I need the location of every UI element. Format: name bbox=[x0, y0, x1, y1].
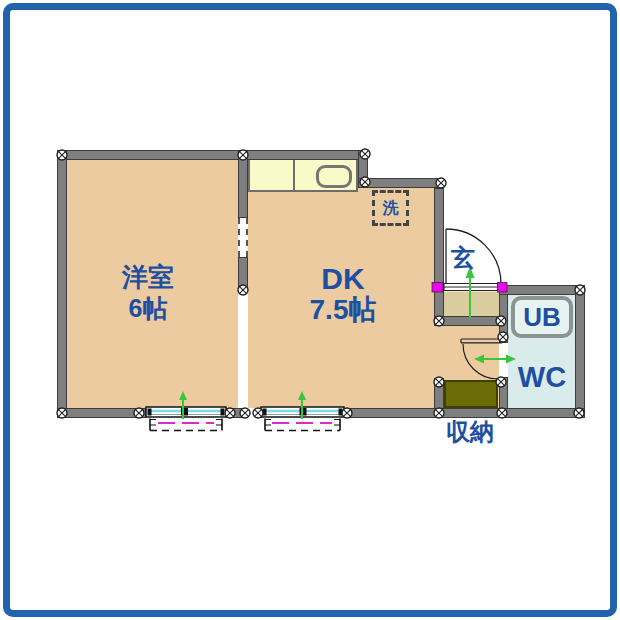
storage-label: 収納 bbox=[446, 420, 494, 444]
wall-partition-lower bbox=[238, 257, 248, 291]
wall-partition-opening bbox=[238, 218, 248, 257]
wall-entrance-bottom bbox=[434, 316, 508, 326]
entrance-floor bbox=[444, 291, 499, 316]
wall-entrance-top bbox=[358, 178, 444, 188]
wall-bottom-4 bbox=[344, 408, 585, 418]
entrance-label: 玄 bbox=[451, 246, 475, 270]
wall-bottom-2 bbox=[226, 408, 246, 418]
western-room-size: 6帖 bbox=[129, 296, 168, 321]
wall-entrance-left bbox=[434, 188, 444, 326]
dining-kitchen-label: DK bbox=[321, 264, 364, 294]
counter-divider bbox=[293, 160, 295, 190]
washer-label: 洗 bbox=[383, 200, 399, 216]
wall-top bbox=[57, 150, 368, 160]
floor-plan: UB 洗 bbox=[0, 0, 620, 620]
storage-closet bbox=[444, 380, 498, 408]
dining-kitchen-size: 7.5帖 bbox=[310, 296, 377, 324]
wall-bottom-3 bbox=[256, 408, 262, 418]
wall-bath-right bbox=[575, 285, 585, 418]
wall-partition-upper bbox=[238, 150, 248, 218]
footer: セブンホームズ 株式会社 bbox=[0, 548, 620, 620]
unit-bath-fixture: UB bbox=[511, 296, 573, 338]
wall-left bbox=[57, 150, 67, 418]
unit-bath-label: UB bbox=[523, 304, 561, 330]
kitchen-sink-icon bbox=[316, 165, 352, 188]
western-room-label: 洋室 bbox=[122, 264, 174, 290]
wall-bottom-1 bbox=[57, 408, 146, 418]
kitchen-counter bbox=[248, 158, 358, 192]
washer-space: 洗 bbox=[372, 190, 409, 226]
toilet-label: WC bbox=[518, 363, 566, 392]
wall-bath-top bbox=[499, 285, 585, 295]
